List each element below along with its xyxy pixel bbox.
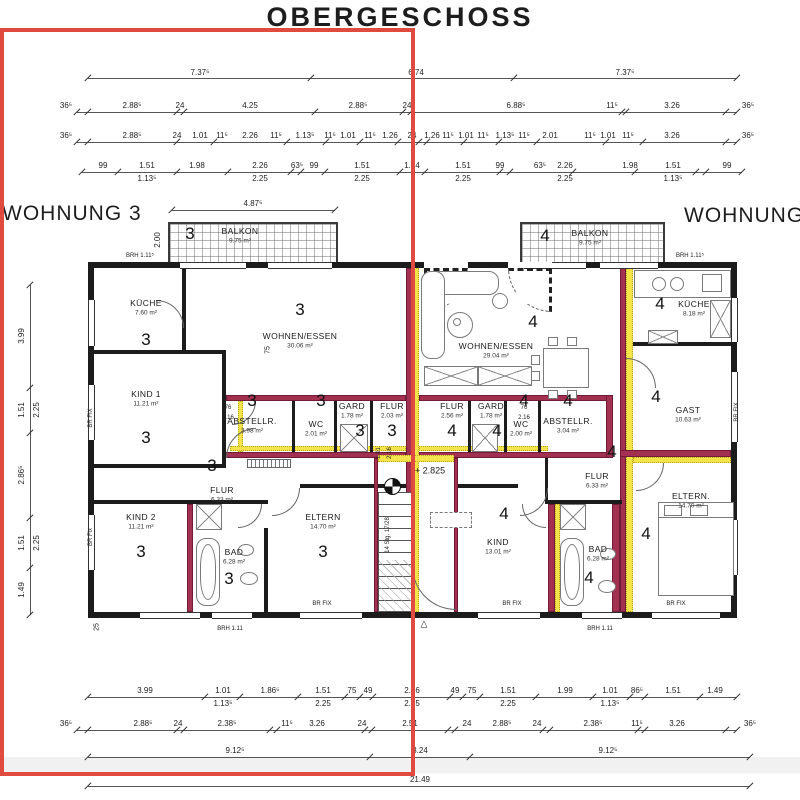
dimension-label: 21.49: [410, 776, 430, 784]
dimension-label: 99: [496, 162, 505, 170]
kitchen-hob: [702, 274, 722, 292]
dimension-label: 1.98: [622, 162, 638, 170]
dining-chair: [548, 390, 558, 399]
wall-wc4-right: [538, 401, 541, 452]
window-kueche4: [731, 298, 738, 342]
wall-flur4-right: [468, 401, 471, 452]
bathtub-4-inner: [564, 544, 580, 600]
dining-chair: [567, 337, 577, 346]
room-area: 2.00 m²: [510, 431, 532, 438]
dimension-tick: [733, 74, 740, 81]
window-kind4: [478, 612, 540, 619]
window-eltern4: [652, 612, 720, 619]
dimension-label: 11⁵: [477, 132, 489, 140]
room-area: 29.04 m²: [483, 353, 509, 360]
plan-annotation: + 2.825: [415, 467, 445, 476]
wall-kind4-right: [548, 504, 555, 612]
dimension-label: 75: [468, 687, 477, 695]
dimension-label: 3.26: [664, 132, 680, 140]
dining-chair: [531, 371, 540, 381]
wall-kind4-top: [458, 484, 518, 488]
dimension-label: 49: [451, 687, 460, 695]
room-name: FLUR: [440, 401, 464, 411]
dimension-label: 86⁵: [631, 687, 643, 695]
dimension-label-below: 2.25: [455, 175, 471, 183]
room-area: 1.78 m²: [480, 413, 502, 420]
room-number: 4: [563, 391, 572, 411]
dimension-tick: [733, 726, 740, 733]
room-number: 4: [641, 524, 650, 544]
dimension-label: 11⁵: [584, 132, 596, 140]
dimension-label: 2.88⁵: [493, 720, 512, 728]
door-arc-eltern4: [636, 463, 664, 491]
sofa-chaise: [421, 271, 445, 359]
sideboard: [424, 366, 478, 386]
dimension-label-below: 1.13⁵: [601, 700, 620, 708]
room-name: BALKON: [572, 228, 609, 238]
dimension-label: 11⁵: [518, 132, 530, 140]
room-name: BAD: [589, 544, 608, 554]
room-number: 4: [655, 294, 664, 314]
plan-annotation: BR FIX: [502, 601, 521, 607]
side-table: [492, 293, 508, 309]
room-area: 8.18 m²: [683, 311, 705, 318]
floorplan-canvas: OBERGESCHOSS WOHNUNG 3 WOHNUNG 4: [0, 0, 800, 800]
room-area: 9.75 m²: [579, 240, 601, 247]
room-name: WOHNEN/ESSEN: [459, 341, 534, 351]
dimension-label: 1.51: [665, 162, 681, 170]
staircase-headroom-dashed: [430, 512, 472, 528]
room-number: 4: [651, 387, 660, 407]
dining-table: [543, 348, 589, 388]
room-area: 10.63 m²: [675, 417, 701, 424]
dimension-tick: [733, 138, 740, 145]
dimension-label: 99: [723, 162, 732, 170]
dimension-label: 1.51: [665, 687, 681, 695]
dimension-label-below: 1.13⁵: [664, 175, 683, 183]
dimension-label: 36⁵: [744, 720, 756, 728]
kitchen-sink-bowl: [652, 277, 666, 291]
dimension-label: 1.01: [458, 132, 474, 140]
room-name: KÜCHE: [678, 299, 710, 309]
shower-4: [560, 504, 586, 530]
room-name: FLUR: [585, 471, 609, 481]
plan-annotation: BR FIX: [666, 601, 685, 607]
room-area: 6.33 m²: [586, 483, 608, 490]
dimension-label: 36⁵: [742, 102, 754, 110]
armchair-cushion: [453, 318, 461, 326]
room-name: GARD: [478, 401, 504, 411]
window-balcony4-door2: [600, 262, 658, 269]
dimension-label: 24: [463, 720, 472, 728]
dimension-label: 2.38⁵: [584, 720, 603, 728]
dimension-label: 3.26: [664, 102, 680, 110]
kitchen-tall-unit: [710, 300, 731, 338]
room-name: ELTERN.: [672, 491, 710, 501]
dimension-label: 63⁵: [534, 162, 546, 170]
room-number: 4: [528, 312, 537, 332]
wall-gard4-right: [504, 401, 507, 452]
dimension-label: 1.51: [500, 687, 516, 695]
dimension-line: [88, 786, 750, 787]
dimension-label: 36⁵: [742, 132, 754, 140]
dimension-label: 1.51: [455, 162, 471, 170]
room-number: 4: [540, 226, 549, 246]
room-name: ABSTELLR.: [543, 416, 592, 426]
dimension-label: 2.01: [542, 132, 558, 140]
dimension-label: 7.37⁵: [616, 69, 635, 77]
plan-annotation: BRH 1.11: [587, 626, 613, 632]
door-arc-entrance4: [508, 268, 552, 312]
room-area: 13.01 m²: [485, 549, 511, 556]
sideboard-2: [478, 366, 532, 386]
window-bad4: [582, 612, 622, 619]
wall-gast-bottom: [620, 450, 731, 457]
room-area: 6.28 m²: [587, 556, 609, 563]
room-area: 3.04 m²: [557, 428, 579, 435]
dimension-label: 24: [533, 720, 542, 728]
room-number: 4: [447, 421, 456, 441]
plan-annotation: 76: [521, 405, 528, 411]
room-name: GAST: [676, 405, 701, 415]
dimension-label: 9.12⁵: [599, 747, 618, 755]
dimension-label: 11⁵: [442, 132, 454, 140]
plan-annotation: BRH 1.11⁵: [676, 253, 704, 259]
dimension-label: 1.13⁵: [496, 132, 515, 140]
room-name: KIND: [487, 537, 509, 547]
dimension-label: 1.01: [600, 132, 616, 140]
room-area: 14.70 m²: [678, 503, 704, 510]
dimension-label-below: 2.25: [500, 700, 516, 708]
dimension-label: 1.01: [602, 687, 618, 695]
dimension-label: 11⁵: [631, 720, 643, 728]
plan-annotation: 2.16: [518, 415, 530, 421]
insulation-kueche4: [626, 268, 633, 612]
dimension-label: 1.26: [424, 132, 440, 140]
plan-annotation: △: [421, 620, 428, 629]
dining-chair: [548, 337, 558, 346]
dimension-tick: [746, 782, 753, 789]
dimension-label: 11⁵: [606, 102, 618, 110]
room-number: 4: [584, 568, 593, 588]
sink-4: [598, 580, 616, 593]
room-number: 4: [492, 421, 501, 441]
dining-chair: [531, 355, 540, 365]
dimension-label: 6.88⁵: [507, 102, 526, 110]
dimension-label: 3.26: [669, 720, 685, 728]
kitchen-sink-bowl2: [670, 277, 684, 291]
room-area: 2.56 m²: [441, 413, 463, 420]
dimension-tick: [738, 168, 745, 175]
dimension-label: 1.49: [707, 687, 723, 695]
dimension-label: 11⁵: [622, 132, 634, 140]
dimension-label-below: 2.25: [557, 175, 573, 183]
apartment4-label: WOHNUNG 4: [684, 204, 800, 228]
kitchen-lower-unit: [648, 330, 678, 344]
room-number: 4: [607, 442, 616, 462]
door-arc-bad4: [522, 504, 546, 528]
dimension-tick: [733, 693, 740, 700]
plan-annotation: BR FIX: [734, 402, 740, 421]
dimension-tick: [733, 108, 740, 115]
room-number: 4: [499, 504, 508, 524]
armchair: [447, 312, 473, 338]
door-arc-gast: [626, 358, 656, 388]
dimension-label: 2.26: [557, 162, 573, 170]
dimension-label: 1.99: [557, 687, 573, 695]
selection-overlay-rectangle: [0, 28, 415, 776]
